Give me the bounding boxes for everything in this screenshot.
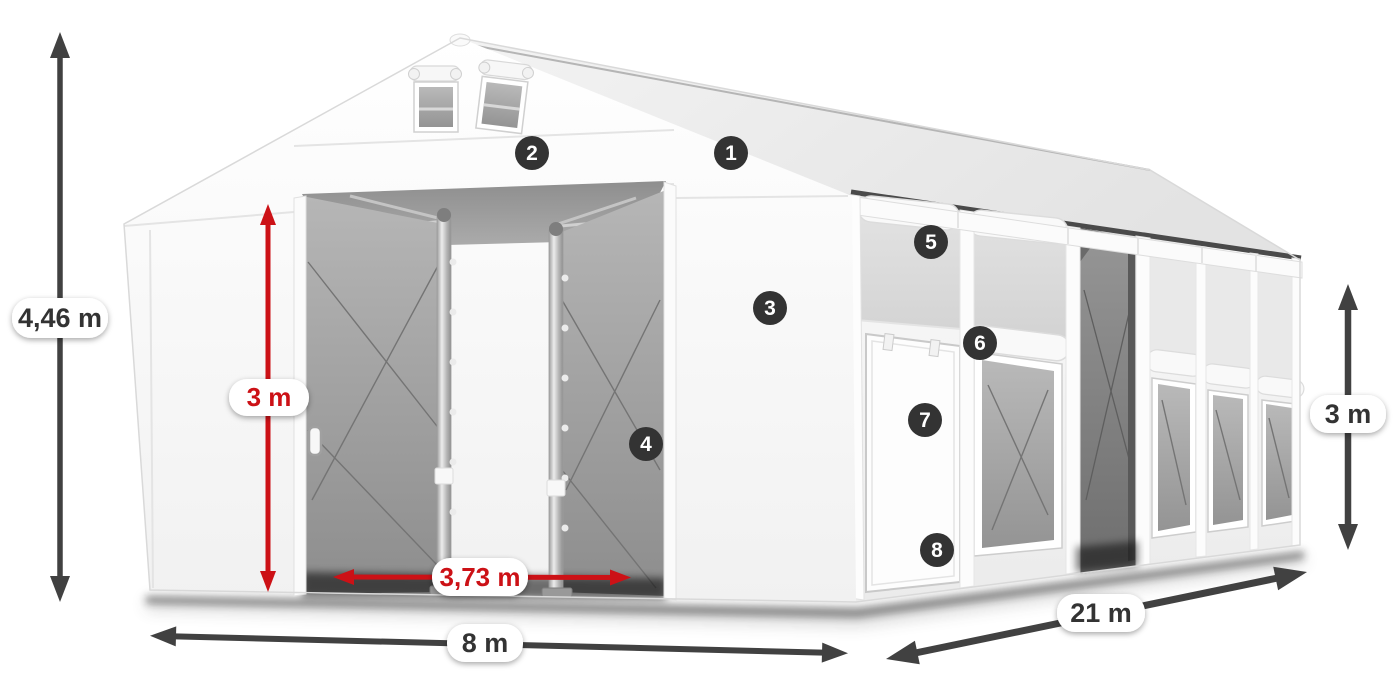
window-mesh bbox=[982, 360, 1054, 548]
arrow-down-icon bbox=[1338, 524, 1358, 550]
callout-7[interactable]: 7 bbox=[908, 403, 942, 437]
post-bar bbox=[437, 214, 451, 592]
vent-roll-cap bbox=[409, 69, 420, 80]
side-door-strap-1 bbox=[883, 334, 894, 351]
vent-roll-cap bbox=[451, 69, 462, 80]
total-height-label: 4,46 m bbox=[18, 303, 102, 333]
gable-vent-left bbox=[409, 66, 462, 132]
entrance-jamb-right bbox=[664, 182, 676, 600]
entrance-curtain-right bbox=[557, 190, 666, 596]
post-bar bbox=[549, 228, 563, 592]
diagram-canvas: 1 2 3 4 5 6 7 8 bbox=[0, 0, 1400, 700]
side-opening bbox=[1080, 228, 1136, 574]
wall-strap bbox=[960, 210, 974, 588]
side-wall bbox=[846, 194, 1305, 602]
side-length-label: 21 m bbox=[1070, 598, 1132, 628]
arrow-up-icon bbox=[1338, 284, 1358, 310]
callout-2-number: 2 bbox=[526, 142, 538, 165]
callout-5[interactable]: 5 bbox=[914, 225, 948, 259]
dimension-total-height: 4,46 m bbox=[12, 32, 108, 602]
callout-6[interactable]: 6 bbox=[963, 326, 997, 360]
wall-strap bbox=[1136, 236, 1150, 566]
tent-dimension-diagram: 1 2 3 4 5 6 7 8 bbox=[0, 0, 1400, 700]
arrow-left-icon bbox=[150, 626, 177, 647]
arrow-up-icon bbox=[50, 32, 70, 58]
arrow-left-icon bbox=[884, 641, 920, 671]
post-strap bbox=[547, 480, 565, 496]
dimension-front-width: 8 m bbox=[150, 624, 849, 663]
entrance-curtain-left bbox=[302, 196, 443, 594]
wall-strap bbox=[1196, 246, 1206, 557]
callout-1-number: 1 bbox=[725, 142, 737, 165]
wall-strap bbox=[1250, 253, 1258, 550]
post-joint bbox=[437, 208, 451, 222]
callout-5-number: 5 bbox=[925, 231, 937, 254]
post-strap bbox=[435, 468, 453, 484]
callout-2[interactable]: 2 bbox=[515, 136, 549, 170]
callout-7-number: 7 bbox=[919, 409, 931, 432]
curtain-panel bbox=[302, 196, 443, 594]
callout-1[interactable]: 1 bbox=[714, 136, 748, 170]
wall-height-label: 3 m bbox=[1325, 399, 1372, 429]
callout-4[interactable]: 4 bbox=[629, 427, 663, 461]
callout-8[interactable]: 8 bbox=[920, 533, 954, 567]
front-width-label: 8 m bbox=[462, 628, 509, 658]
door-width-label: 3,73 m bbox=[440, 562, 521, 592]
vent-mesh bbox=[419, 87, 453, 127]
curtain-panel bbox=[557, 190, 666, 596]
opening-corner-post bbox=[1128, 237, 1135, 561]
wall-strap bbox=[1066, 226, 1080, 574]
wall-strap bbox=[1292, 258, 1300, 546]
side-opening-curtain bbox=[1080, 228, 1136, 574]
post-base-plate bbox=[542, 588, 572, 597]
side-door-strap-2 bbox=[929, 340, 940, 357]
dimension-wall-height: 3 m bbox=[1310, 284, 1386, 550]
arrow-right-icon bbox=[822, 643, 849, 664]
tent-illustration bbox=[124, 34, 1305, 602]
callout-4-number: 4 bbox=[640, 433, 652, 456]
callout-8-number: 8 bbox=[931, 539, 943, 562]
callout-3-number: 3 bbox=[764, 297, 776, 320]
post-joint bbox=[549, 222, 563, 236]
arrow-down-icon bbox=[50, 576, 70, 602]
door-handle bbox=[309, 427, 321, 455]
callout-3[interactable]: 3 bbox=[753, 291, 787, 325]
callout-6-number: 6 bbox=[974, 332, 986, 355]
door-height-label: 3 m bbox=[247, 382, 292, 412]
